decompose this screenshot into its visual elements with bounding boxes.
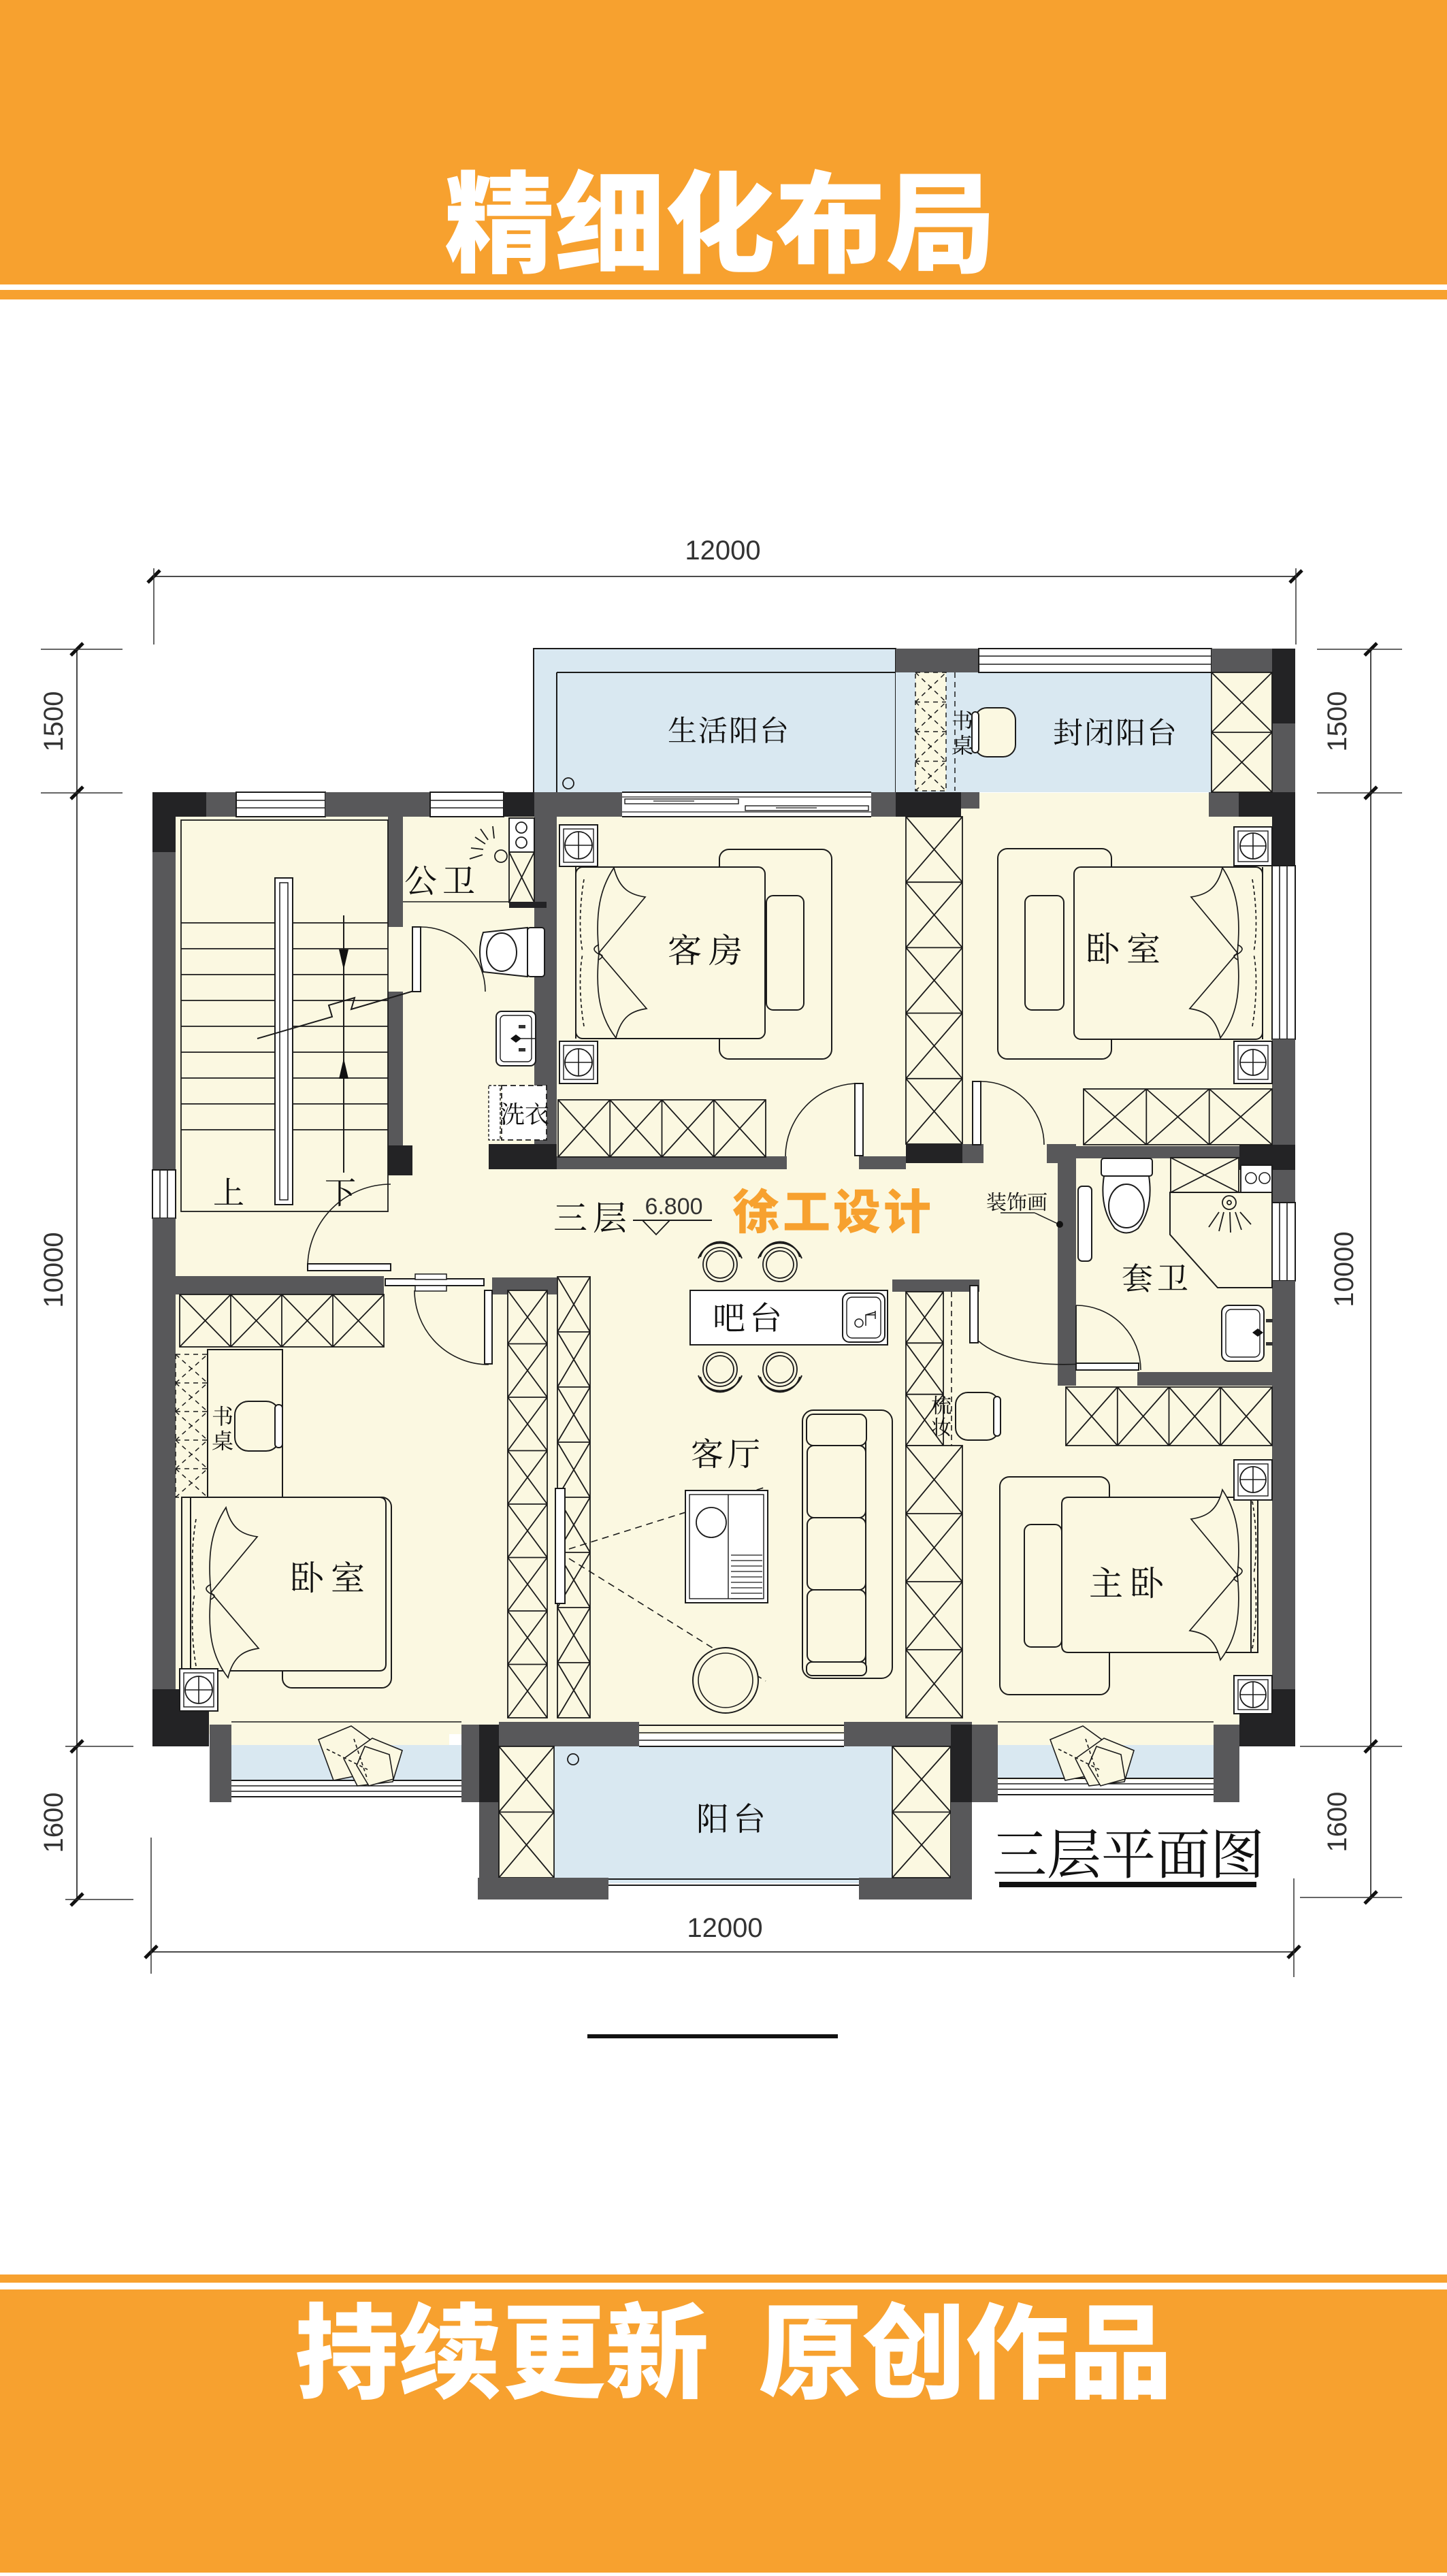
svg-text:1500: 1500 — [39, 691, 69, 752]
svg-text:10000: 10000 — [39, 1232, 69, 1307]
svg-text:12000: 12000 — [685, 536, 760, 566]
svg-text:1600: 1600 — [1322, 1792, 1352, 1853]
svg-text:1600: 1600 — [39, 1793, 69, 1853]
svg-text:6.800: 6.800 — [645, 1194, 702, 1220]
svg-text:12000: 12000 — [687, 1913, 762, 1943]
svg-text:1500: 1500 — [1322, 691, 1352, 752]
svg-text:10000: 10000 — [1329, 1231, 1359, 1307]
